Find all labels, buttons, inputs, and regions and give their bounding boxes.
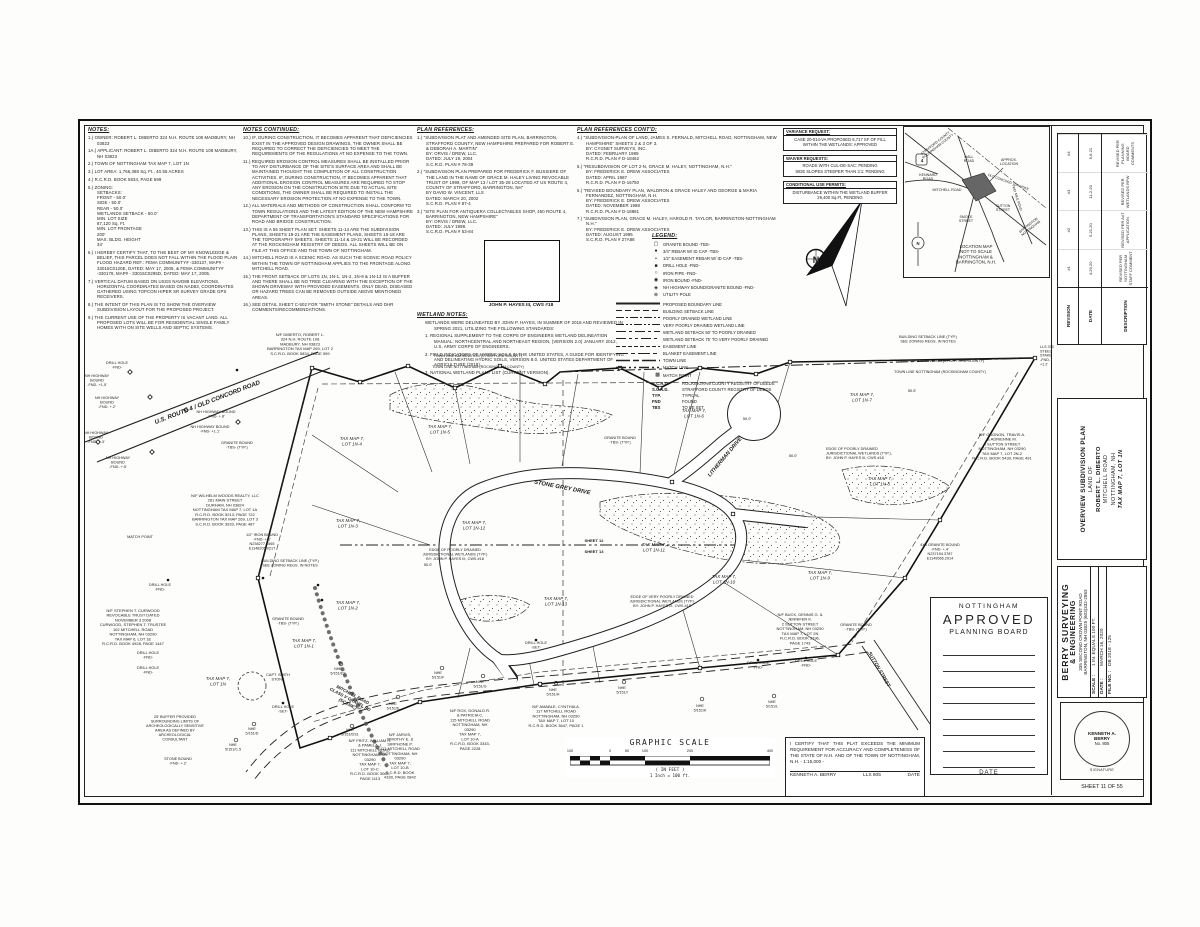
firm-name-2: & ENGINEERING [1070,567,1077,697]
legend-line-label: TOWN LINE [663,358,686,364]
file-value: DB 2018 - 125 [1108,635,1113,666]
abbr-value: TO BE SET [682,405,704,411]
plan-label: STONE BOUND-FND- +.2' [164,757,192,765]
legend-line-row: VERY POORLY DRAINED WETLAND LINE [616,322,808,329]
plan-label: LLS 375STEELSTAKE-FND-+1.2' [1040,345,1054,366]
legend-line-row: POORLY DRAINED WETLAND LINE [616,315,808,322]
scale-tick-label: 400 [767,749,773,753]
highway-bound-marker-icon [128,370,133,375]
plan-label: NH HIGHWAY BOUND-FND- +1.1' [191,425,230,433]
plan-label: 4X4 GRANITE BOUND-FND- +.4'N237194.3787E… [920,543,960,560]
legend-panel: LEGEND: ▢GRANITE BOUND -TBS-●3/4" REBAR … [630,233,808,411]
plan-label: TAX MAP 7,LOT 1N [206,676,230,686]
legend-line-row: BLANKET EASEMENT LINE [616,351,808,358]
revision-block: REVISION#1#2#3#4 DATE4-29-205-21-2011-2-… [1057,133,1147,345]
conditional-use-box: CONDITIONAL USE PERMITS: DISTURBANCE WIT… [783,181,897,204]
planning-board-approval-box: NOTTINGHAM APPROVED PLANNING BOARD DATE [930,597,1048,775]
seal-signature-label: SIGNATURE [1090,768,1114,772]
granite-bound-marker-icon [1033,356,1036,359]
legend-line-row: EASEMENT LINE [616,344,808,351]
granite-bound-marker-icon [698,666,701,669]
title-line-3: MITCHELL ROAD [1103,399,1109,559]
plan-label: NHE5/151/L [766,700,778,708]
utility-pole-icon [481,674,485,678]
highway-bound-marker-icon [236,420,241,425]
plan-label: TAX MAP 7,LOT 1N-11 [642,542,666,552]
dd50-line-sample-icon [616,329,660,336]
legend-line-row: PROPOSED BOUNDARY LINE [616,301,808,308]
plan-label: NH HIGHWAYBOUND-FND- +1.5' [85,374,110,387]
plan-label: 50.0' [789,453,798,458]
plan-label: N/F GAGNON, TRAVIS A.& ADRIENNE M.4 SUTT… [972,432,1032,461]
highway-bound-marker-icon [150,450,155,455]
plan-label: TAX MAP 7,LOT 1N-2 [336,600,360,610]
notes-continued-panel: NOTES CONTINUED: 10.) IF, DURING CONSTRU… [243,127,413,315]
certifier-name: KENNETH A. BERRY [790,773,836,778]
wetland-notes-intro: WETLANDS WERE DELINEATED BY JOHN P. HAYE… [425,320,625,330]
parcel-boundary [258,358,1035,748]
graphic-scale: GRAPHIC SCALE 100050100200400 ( IN FEET … [565,738,775,778]
bcirc-symbol-icon: ◉ [652,277,660,284]
legend-line-label: VERY POORLY DRAINED WETLAND LINE [663,323,745,329]
granite-bound-marker-icon [418,700,421,703]
bease-line-sample-icon [616,351,660,358]
revision-cell: 5-6-21 [1079,134,1101,172]
note-item: 2.) "SUBDIVISION PLAN PREPARED FOR FREDE… [417,169,575,206]
permit-line: WITHIN THE WETLANDS: APPROVED [786,142,894,148]
up-symbol-icon: ⊕ [652,292,660,299]
title-line-1: LAND OF [1088,399,1094,559]
scale-value: 1 IN. EQUALS 100 FT. [1092,618,1097,666]
approval-town: NOTTINGHAM [931,603,1047,610]
granite-bound-marker-icon [453,386,456,389]
permit-boxes: VARIANCE REQUEST: CASE 20-014-VA PROPOSE… [783,128,897,208]
legend-symbol-label: UTILITY POLE [663,292,691,298]
date-value: MARCH 16, 2020 [1100,628,1105,666]
plan-label: SHEET 13 [585,549,605,554]
survey-plat-sheet: { "sheet": {"label": "SHEET 11 OF 55"}, … [0,0,1200,927]
plan-label: 1/2" IRON BOUND-FND- +.5'N238277.1565E11… [246,533,278,550]
solid-line-sample-icon [616,301,660,308]
note-item: 3. NATIONAL WETLAND PLANT LIST (CURRENT … [425,370,625,375]
plan-label: TAX MAP 7,LOT 1N-7 [850,392,874,402]
legend-line-label: PROPOSED BOUNDARY LINE [663,302,722,308]
plan-label: N/F STEPHEN T. CURWOODREVOCABLE TRUST DA… [100,608,167,646]
plan-label: GRANITE BOUND-TBS- (TYP.) [221,441,253,449]
note-item: 13.) THIS IS A 55 SHEET PLAN SET. SHEETS… [243,227,413,253]
legend-line-row: WETLAND SETBACK 75' TO VERY POORLY DRAIN… [616,336,808,343]
utility-pole-icon [622,680,626,684]
plan-label: NHE5/151/F [432,671,445,679]
plan-label: TAX MAP 7,LOT 1N-10 [712,574,736,584]
firm-block: BERRY SURVEYING & ENGINEERING 335 SECOND… [1057,566,1147,698]
ease-line-sample-icon [616,344,660,351]
circ-symbol-icon: ○ [652,270,660,277]
conditional-title: CONDITIONAL USE PERMITS: [784,182,896,189]
plan-label: N/F WILHELM WOODS REALTY, LLC281 MAIN ST… [191,493,259,526]
drill-hole-marker-icon [321,599,324,602]
legend-symbol-label: IRON PIPE -FND- [663,271,697,277]
drill-hole-marker-icon [167,579,170,582]
legend-line-row: MATCH LINE [616,365,808,372]
mpoint-line-sample-icon: ▩ [616,372,660,379]
location-map-label: APPROX.LOCATION [1000,158,1019,166]
granite-bound-marker-icon [256,576,259,579]
utility-pole-icon [234,738,238,742]
certification-box: I CERTIFY THAT THIS PLAT EXCEEDS THE MIN… [785,737,925,797]
revision-cell: REVISED PER PLANNING BOARD COMMENTS [1102,134,1148,172]
legend-abbreviation-row: TBSTO BE SET [652,405,808,411]
highway-bound-marker-icon [148,395,153,400]
plan-label: SUTTON STREET [866,651,892,689]
legend-symbol-label: NH HIGHWAY BOUND/GRANITE BOUND -FND- [663,285,755,291]
plan-label: N/F DIBERTO, ROBERT L.324 N.H. ROUTE 108… [267,332,334,356]
legend-line-row: WETLAND SETBACK 50' TO POORLY DRAINED [616,329,808,336]
dashdot-line-sample-icon [616,315,660,322]
waivers-title: WAIVER REQUESTS: [784,156,896,163]
dd75-line-sample-icon [616,336,660,343]
seal-name: KENNETH A. BERRY [1080,731,1124,741]
dot-symbol-icon: ● [652,248,660,255]
plan-label: TAX MAP 7,LOT 1N-12 [462,520,486,530]
plan-references-contd-panel: PLAN REFERENCES CONT'D: 4.) "SUBDIVISION… [577,127,782,245]
variance-title: VARIANCE REQUEST: [784,129,896,136]
location-map-label: N [916,241,919,246]
plan-label: EDGE OF POORLY DRAINEDJURISDICTIONAL WET… [826,447,892,460]
note-item: 1.) OWNER: ROBERT L. DIBERTO 324 N.H. RO… [88,135,240,145]
note-item: 15.) THE FRONT SETBACK OF LOTS 1N, 1N-1,… [243,274,413,300]
plan-label: CAPT. SMITHSTONE [266,673,290,681]
match-line-sample-icon [616,365,660,372]
legend-symbol-label: 1/2" EASEMENT REBAR W/ ID CAP -TBS- [663,256,743,262]
plan-label: N/F AMABLE, CYNTHIA A.117 MITCHELL ROADN… [528,704,584,728]
plan-label: DRILL HOLE-SET- [525,641,547,649]
approval-board: PLANNING BOARD [931,629,1047,636]
plan-label: BUILDING SETBACK LINE (TYP.)SEE ZONING R… [899,335,957,343]
bsq-symbol-icon: ■ [652,263,660,270]
sq-symbol-icon: ▢ [652,241,660,248]
plan-label: NHE5/151/DS1 [341,728,358,736]
note-item: 1. REGIONAL SUPPLEMENT TO THE CORPS OF E… [425,333,625,349]
granite-bound-marker-icon [836,653,839,656]
plan-label: 50.5' [908,388,917,393]
sdot-symbol-icon: • [652,256,660,263]
plan-label: DRILL HOLE-FND- [795,659,817,667]
signature-line [943,672,1035,688]
revision-cell: 4-29-20 [1079,249,1101,287]
location-map-label: SMOKESTREET [959,215,974,223]
wetland-notes-panel: WETLAND NOTES: WETLANDS WERE DELINEATED … [417,312,625,378]
title-line-4: NOTTINGHAM, NH [1111,399,1117,559]
legend-line-label: BLANKET EASEMENT LINE [663,351,717,357]
notes-panel: NOTES: 1.) OWNER: ROBERT L. DIBERTO 324 … [88,127,240,333]
capt-smith-stone [238,672,266,700]
plan-label: NHE5/151/K [694,704,707,712]
plan-label: NHE5/151/C.5 [225,743,241,751]
note-item: 10.) IF, DURING CONSTRUCTION, IT BECOMES… [243,135,413,156]
note-item: 6.) I HEREBY CERTIFY THAT, TO THE BEST O… [88,250,240,276]
plan-label: BUILDING SETBACK LINE (TYP.)SEE ZONING R… [261,559,319,567]
legend-symbol-row: ●3/4" REBAR W/ ID CAP -TBS- [652,248,808,255]
plan-label: TOWN LINE BARRINGTON (STRAFFORD COUNTY) [896,359,985,363]
date-label: DATE : [1100,666,1105,694]
utility-pole-icon [252,722,256,726]
town-line-sample-icon [616,358,660,365]
note-item: 3.) LOT AREA: 1,766,388 Sq. Ft., 40.55 A… [88,169,240,174]
revision-cell: REVISED PER WETLANDS RPW [1102,172,1148,210]
location-map-label: STRAFFORD COUNTYROCKINGHAM COUNTY [919,129,955,160]
plan-label: NHE5/151/H [547,688,560,696]
plan-label: TOWN LINE NOTTINGHAM (ROCKINGHAM COUNTY) [894,370,986,374]
legend-symbol-row: ▢GRANITE BOUND -TBS- [652,241,808,248]
legend-line-label: EASEMENT LINE [663,344,696,350]
note-item: 9.) THE CURRENT USE OF THE PROPERTY IS V… [88,315,240,331]
drill-hole-marker-icon [262,577,265,580]
legend-symbol-label: DRILL HOLE -FND- [663,263,700,269]
waiver-requests-box: WAIVER REQUESTS: ROADS WITH CUL-DE-SAC: … [783,155,897,178]
plan-label: NHE5/151/I [616,686,627,694]
plan-label: SHEET 12 [585,538,605,543]
revision-col-header: DATE [1079,287,1101,344]
legend-symbol-row: •1/2" EASEMENT REBAR W/ ID CAP -TBS- [652,256,808,263]
granite-bound-marker-icon [538,682,541,685]
firm-addr-2: BARRINGTON, NH 03825 (603)332-2863 [1083,567,1088,697]
plan-label: GRANITE BOUND-TBS- (TYP.) [272,617,304,625]
revision-cell: 11-2-20 [1079,172,1101,210]
note-item: 3.) "SITE PLAN FOR ANTIQUERA COLLECTABLE… [417,209,575,235]
plan-label: DRILL HOLE-FND- [149,583,171,591]
title-line-2: ROBERT L. DIBERTO [1096,399,1102,559]
plan-label: GRANITE BOUND-TBS- (TYP.) [604,436,636,444]
scale-tick-label: 200 [687,749,693,753]
note-item: 6.) "REVISED BOUNDARY PLAN, WALDRON & GR… [577,188,782,214]
plan-references-panel: PLAN REFERENCES: 1.) "SUBDIVISION PLAT A… [417,127,575,237]
file-label: FILE NO. : [1108,666,1113,694]
location-map-label: LOCATION MAPNOT TO SCALENOTTINGHAM &BARR… [956,244,996,265]
plan-label: 50.0' [424,562,433,567]
plan-label: EDGE OF POORLY DRAINEDJURISDICTIONAL WET… [423,548,489,561]
location-map-label: HALLROAD [964,155,975,163]
note-item: 5.) "RESUBDIVISION OF LOT 2-N, GRACE M. … [577,164,782,185]
utility-pole-icon [440,666,444,670]
plan-label: DRILL HOLE-FND- [137,651,159,659]
plan-label: TAX MAP 7,LOT 1N-3 [336,518,360,528]
legend-line-row: TOWN LINE [616,358,808,365]
note-item: 4.) R.C.R.D. BOOK 5834, PAGE 599 [88,177,240,182]
plan-label: NH HIGHWAYBOUND-FND- +.5' [106,456,131,469]
plan-label: NH HIGHWAYBOUND-FND- +.3' [84,431,109,444]
plan-label: TAX MAP 7,LOT 1N-9 [808,570,832,580]
plan-references-title: PLAN REFERENCES: [417,127,575,133]
plan-label: NH HIGHWAY BOUND-FND- +.8' [197,410,236,418]
signature-line [943,688,1035,704]
wetland-scientist-name: JOHN P. HAYES III, CWS #18 [440,303,602,308]
scale-tick-label: 100 [642,749,648,753]
legend-symbol-row: ◉IRON BOUND -FND- [652,277,808,284]
firm-name-1: BERRY SURVEYING [1060,567,1070,697]
note-item: 14.) MITCHELL ROAD IS A SCENIC ROAD. AS … [243,255,413,271]
certification-text: I CERTIFY THAT THIS PLAT EXCEEDS THE MIN… [790,741,920,765]
granite-bound-marker-icon [358,380,361,383]
plan-label: NHE5/151/D [246,727,259,735]
plan-label: N/F JARVIS,TIMOTHY E. &SIRPHONE P.113 MI… [380,732,420,779]
plan-references-contd-title: PLAN REFERENCES CONT'D: [577,127,782,133]
note-item: 12.) ALL MATERIALS AND METHODS OF CONSTR… [243,203,413,224]
certification-date-label: DATE [908,773,920,778]
scale-ratio-note: 1 Inch = 100 ft. [565,773,775,778]
legend-line-label: MATCH POINT [663,373,692,379]
signature-line [943,736,1035,752]
plan-label: NH HIGHWAYBOUND-FND- +.2' [95,396,120,409]
legend-symbol-label: GRANITE BOUND -TBS- [663,242,710,248]
signature-line [943,656,1035,672]
sheet-number: SHEET 11 OF 55 [1057,784,1147,790]
legend-line-label: MATCH LINE [663,365,688,371]
legend-line-row: BUILDING SETBACK LINE [616,308,808,315]
wetland-scientist-stamp-box [484,240,560,302]
wetland-areas [390,384,950,621]
plan-label: N [813,255,820,265]
note-item: 1A.) APPLICANT: ROBERT L. DIBERTO 324 N.… [88,148,240,158]
revision-cell: 5-21-20 [1079,211,1101,249]
granite-bound-marker-icon [328,736,331,739]
legend-symbol-row: ⊕UTILITY POLE [652,292,808,299]
granite-bound-marker-icon [406,364,409,367]
dash-line-sample-icon [616,308,660,315]
plan-label: MATCH POINT [127,535,154,539]
granite-bound-marker-icon [670,480,673,483]
abbr-key: TBS [652,405,678,411]
location-map-label: 4 [921,158,924,163]
dashdotdot-line-sample-icon [616,322,660,329]
plan-label: 25' BUFFER PROVIDEDSURROUNDING LIMITS OF… [146,715,204,741]
revision-cell: REVISED PER AoT APPLICATION [1102,211,1148,249]
legend-line-label: POORLY DRAINED WETLAND LINE [663,316,732,322]
note-item: 7.) VERTICAL DATUM BASED ON USGS NAVD88 … [88,279,240,300]
signature-line [943,704,1035,720]
note-item: 2.) TOWN OF NOTTINGHAM TAX MAP 7, LOT 1N [88,161,240,166]
plan-label: TAX MAP 7,LOT 1N-1 [292,638,316,648]
note-item: 8.) THE INTENT OF THIS PLAN IS TO SHOW T… [88,302,240,312]
plan-label: GRANITE BOUND-TBS- (TYP.) [840,623,872,631]
legend-symbol-label: IRON BOUND -FND- [663,278,702,284]
plan-label: DRILL HOLE-FND- [137,666,159,674]
permit-line: SIDE SLOPES STEEPER THAN 3:1: PENDING [786,169,894,175]
approval-approved: APPROVED [931,612,1047,627]
revision-col-header: REVISION [1058,287,1078,344]
plan-label: TAX MAP 7,LOT 1N-13 [544,596,568,606]
surveyor-seal-box: KENNETH A. BERRY No. 805 SIGNATURE [1060,702,1144,780]
graphic-scale-title: GRAPHIC SCALE [565,738,775,747]
granite-bound-marker-icon [903,576,906,579]
notes-title: NOTES: [88,127,240,133]
plan-label: EDGE OF VERY POORLY DRAINEDJURISDICTIONA… [630,595,696,608]
scale-label: SCALE : [1092,666,1097,694]
plan-label: N/F BUCK, DENNIS G. &JENNIFER K.2 SUTTON… [776,612,824,645]
approval-date-label: DATE [931,770,1047,776]
revision-cell: REVISED PER NOTTINGHAM STAFF COMMENT [1102,249,1148,287]
surveyor-seal: KENNETH A. BERRY No. 805 [1074,711,1130,767]
scale-tick-label: 100 [567,749,573,753]
legend-line-label: WETLAND SETBACK 75' TO VERY POORLY DRAIN… [663,337,768,343]
certifier-license: LLS 805 [863,773,881,778]
note-item: 4.) "SUBDIVISION-PLAN OF LAND, JAMES S. … [577,135,782,161]
legend-line-label: BUILDING SETBACK LINE [663,309,714,315]
granite-bound-marker-icon [938,518,941,521]
title-block: OVERVIEW SUBDIVISION PLAN LAND OF ROBERT… [1057,398,1147,560]
plan-label: 50.0' [743,416,752,421]
legend-symbol-row: ◈NH HIGHWAY BOUND/GRANITE BOUND -FND- [652,285,808,292]
revision-col-header: DESCRIPTION [1102,287,1148,344]
legend-symbol-row: ○IRON PIPE -FND- [652,270,808,277]
title-line-5: TAX MAP 7, LOT 1N [1118,399,1124,559]
note-item: 5.) ZONING: SETBACKS: FRONT - 50.0' SIDE… [88,185,240,248]
title-line-0: OVERVIEW SUBDIVISION PLAN [1080,399,1087,559]
legend-line-label: WETLAND SETBACK 50' TO POORLY DRAINED [663,330,756,336]
scale-tick-label: 0 [609,749,611,753]
plan-label: TAX MAP 7,LOT 1N-5 [428,424,452,434]
plan-label: DRILL HOLE-FND- [106,361,128,369]
location-map-label: SUTTONSTREET [996,204,1011,212]
scale-tick-label: 50 [625,749,629,753]
granite-bound-marker-icon [543,382,546,385]
utility-pole-icon [772,694,776,698]
scale-bar [570,756,770,766]
plan-label: TAX MAP 7,LOT 1N-8 [868,476,892,486]
drill-hole-marker-icon [317,584,320,587]
permit-line: 29,400 Sq.Ft. PENDING [786,195,894,201]
legend-title: LEGEND: [652,233,808,239]
note-item: 2. FIELD INDICATORS OF HYDRIC SOILS IN T… [425,352,625,368]
seal-number: No. 805 [1095,741,1110,746]
drill-hole-marker-icon [236,369,239,372]
location-map-label: MITCHELL ROAD [932,188,961,192]
revision-cell: #2 [1058,211,1078,249]
granite-bound-marker-icon [731,512,734,515]
revision-cell: #1 [1058,249,1078,287]
variance-request-box: VARIANCE REQUEST: CASE 20-014-VA PROPOSE… [783,128,897,151]
utility-pole-icon [700,697,704,701]
north-arrow-icon [806,200,862,306]
signature-line [943,640,1035,656]
plan-label: NHE5/151/E [387,702,400,710]
signature-line [943,752,1035,768]
legend-symbol-row: ■DRILL HOLE -FND- [652,263,808,270]
granite-bound-marker-icon [310,366,313,369]
note-item: 11.) REQUIRED EROSION CONTROL MEASURES S… [243,159,413,201]
revision-cell: #3 [1058,172,1078,210]
revision-cell: #4 [1058,134,1078,172]
plan-label: N/F ROX, DONALD R.& PATRICIA C.115 MITCH… [450,708,490,751]
legend-symbol-label: 3/4" REBAR W/ ID CAP -TBS- [663,249,719,255]
utility-pole-icon [396,695,400,699]
drill-hole-marker-icon [282,702,285,705]
note-item: 16.) SEE DETAIL SHEET C-502 FOR "SMITH S… [243,302,413,312]
legend-line-row: ▩MATCH POINT [616,372,808,379]
notes-continued-title: NOTES CONTINUED: [243,127,413,133]
hb-symbol-icon: ◈ [652,285,660,292]
signature-line [943,720,1035,736]
note-item: 1.) "SUBDIVISION PLAT AND AMENDED SITE P… [417,135,575,166]
wetland-notes-title: WETLAND NOTES: [417,312,625,318]
plan-label: TAX MAP 7,LOT 1N-4 [340,436,364,446]
